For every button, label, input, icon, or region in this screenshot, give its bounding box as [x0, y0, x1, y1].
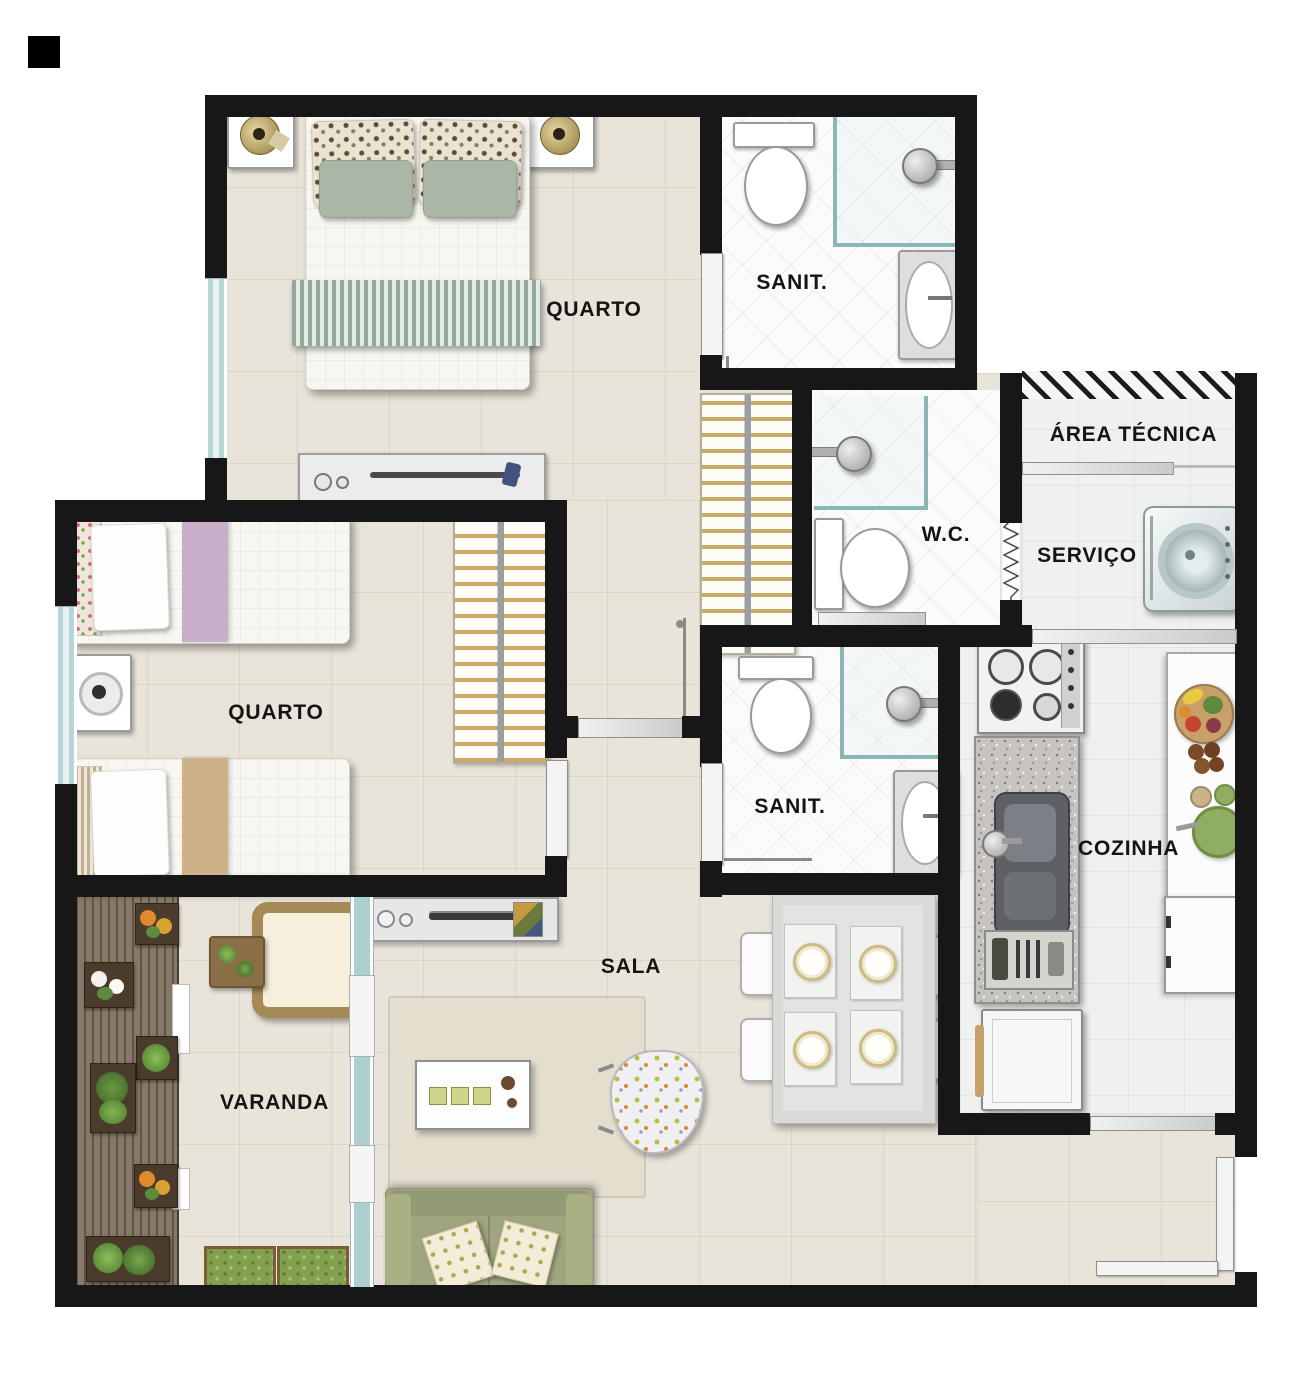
room-label: ÁREA TÉCNICA	[1032, 424, 1235, 445]
step-ledge	[1022, 462, 1174, 475]
dresser-knob	[314, 473, 332, 491]
wall	[700, 117, 722, 255]
kitchen-sink	[994, 792, 1070, 936]
shower-enclosure	[833, 117, 959, 247]
room-label: SALA	[596, 956, 666, 977]
washer-drum-center	[1185, 550, 1195, 560]
lamp-center	[553, 128, 565, 140]
placemat	[784, 1012, 836, 1086]
toilet-bowl	[744, 146, 808, 226]
lilac-runner	[182, 512, 228, 642]
wall	[722, 368, 977, 390]
washer-door-seam	[1150, 516, 1153, 600]
wall	[205, 95, 227, 280]
lamp-center	[253, 128, 265, 140]
tv-soundbar	[370, 472, 520, 478]
wall	[700, 647, 722, 767]
planter-flowers	[135, 903, 179, 945]
door-leaf	[546, 760, 568, 858]
step-line	[1172, 465, 1235, 468]
wall	[560, 716, 578, 738]
single-bed	[68, 512, 348, 642]
cabinet	[1164, 896, 1240, 994]
mini-plant	[451, 1087, 469, 1105]
room-label: W.C.	[901, 524, 991, 545]
rack-knob	[377, 910, 395, 928]
placemat	[784, 924, 836, 998]
planter-flowers	[134, 1164, 178, 1208]
tv-rack	[365, 897, 559, 942]
toilet-bowl	[840, 528, 910, 608]
toilet-tank	[738, 656, 814, 680]
coffee-table	[415, 1060, 531, 1130]
sofa-arm	[385, 1194, 411, 1286]
sage-pillow	[423, 160, 517, 218]
wall	[55, 500, 77, 608]
door-threshold	[1090, 1116, 1218, 1131]
stove-controls	[1061, 639, 1080, 728]
wall	[938, 625, 960, 1115]
washer-control	[1225, 574, 1230, 579]
planter-plant	[136, 1036, 178, 1080]
room-label: QUARTO	[228, 702, 324, 723]
grass-planter	[204, 1246, 276, 1290]
door-threshold	[1032, 629, 1237, 644]
floor-plan: QUARTO SANIT. W.C. ÁREA TÉCNICA SERVIÇO	[0, 0, 1300, 1400]
shower-head	[836, 436, 872, 472]
room-label: QUARTO	[544, 299, 644, 320]
wall	[55, 875, 560, 897]
mini-plant	[429, 1087, 447, 1105]
faucet-spout	[1002, 838, 1022, 844]
wall	[55, 784, 77, 1307]
kitchen-counter	[974, 736, 1080, 1004]
grass-planter	[277, 1246, 349, 1290]
pillow	[90, 769, 170, 878]
door-leaf	[701, 253, 723, 359]
wall	[1235, 1272, 1257, 1307]
wall	[700, 873, 960, 895]
burner	[1029, 649, 1065, 685]
wall	[55, 500, 560, 522]
dresser-knob	[336, 476, 349, 489]
wall	[1215, 1113, 1257, 1135]
planter-plant	[86, 1236, 170, 1282]
sage-pillow	[319, 160, 413, 218]
cabinet-handle	[1166, 956, 1171, 968]
sofa-back	[389, 1190, 588, 1216]
fridge-door-panel	[992, 1019, 1072, 1103]
fruit-bowl	[1174, 684, 1234, 744]
burner	[1033, 693, 1061, 721]
washer-control	[1225, 542, 1230, 547]
door-threshold	[578, 718, 684, 738]
washer-drum	[1158, 523, 1234, 599]
wall	[938, 1113, 1090, 1135]
side-table	[209, 936, 265, 988]
wall	[955, 95, 977, 390]
faucet	[928, 296, 952, 300]
folding-door	[1002, 520, 1020, 602]
faucet	[982, 830, 1010, 858]
wall	[792, 390, 812, 625]
shower-head	[902, 148, 938, 184]
glass-door-frame	[349, 975, 375, 1057]
wall	[700, 355, 722, 390]
rack-knob	[399, 913, 413, 927]
print-mark	[28, 36, 60, 68]
window	[55, 606, 77, 788]
fridge-handle	[975, 1025, 984, 1097]
door-swing-line	[724, 858, 812, 861]
wall	[55, 1285, 1257, 1307]
decor-bowl	[501, 1076, 515, 1090]
shower-head	[886, 686, 922, 722]
decor-bowl	[507, 1098, 517, 1108]
picture-frame	[513, 902, 543, 937]
washer-control	[1225, 558, 1230, 563]
door-leaf	[701, 763, 723, 865]
single-bed	[68, 758, 348, 888]
door-handle	[676, 620, 684, 628]
wall	[205, 95, 977, 117]
room-label: COZINHA	[1078, 838, 1174, 859]
tan-runner	[182, 758, 228, 888]
sink-counter	[898, 250, 962, 360]
entry-door-leaf	[1216, 1157, 1234, 1271]
fridge	[981, 1009, 1083, 1111]
mini-plant	[237, 961, 253, 977]
room-label: VARANDA	[220, 1092, 324, 1113]
sofa-arm	[566, 1194, 592, 1286]
stove	[977, 637, 1085, 734]
dish-rack	[984, 930, 1074, 990]
toilet-tank	[733, 122, 815, 148]
washing-machine	[1143, 506, 1241, 612]
wicker-armchair	[252, 902, 364, 1018]
pillow	[90, 523, 170, 632]
wall	[1000, 373, 1022, 523]
sofa	[385, 1188, 592, 1290]
burner	[988, 649, 1024, 685]
window	[205, 278, 227, 462]
door-leaf-line	[683, 618, 686, 716]
cabinet-handle	[1166, 916, 1171, 928]
small-bowl	[1190, 786, 1212, 808]
wall	[1235, 373, 1257, 1157]
dresser	[298, 453, 546, 505]
planter-flowers	[84, 962, 134, 1008]
cookies-plate	[1188, 742, 1226, 776]
toilet-bowl	[750, 678, 812, 754]
room-label: SERVIÇO	[1035, 545, 1139, 566]
burner	[990, 689, 1022, 721]
wall	[955, 625, 1032, 647]
sink-basin	[905, 261, 953, 349]
hall-wardrobe	[700, 393, 796, 655]
bedroom2-wardrobe	[453, 510, 549, 764]
placemat	[850, 926, 902, 1000]
room-label: SANIT.	[744, 796, 836, 817]
small-bowl	[1214, 784, 1236, 806]
washer-control	[1225, 526, 1230, 531]
glass-door-frame	[349, 1145, 375, 1203]
mini-plant	[473, 1087, 491, 1105]
placemat	[850, 1010, 902, 1084]
mini-plant	[218, 945, 236, 963]
remote-control	[501, 462, 521, 488]
technical-area-hatch	[1022, 371, 1235, 399]
lamp-center	[92, 685, 106, 699]
sliding-glass-door	[350, 897, 374, 1287]
bed-runner	[292, 280, 541, 346]
double-bed	[303, 108, 530, 390]
entry-door-leaf	[1096, 1261, 1218, 1276]
planter-plant	[90, 1063, 136, 1133]
room-label: SANIT.	[746, 272, 838, 293]
